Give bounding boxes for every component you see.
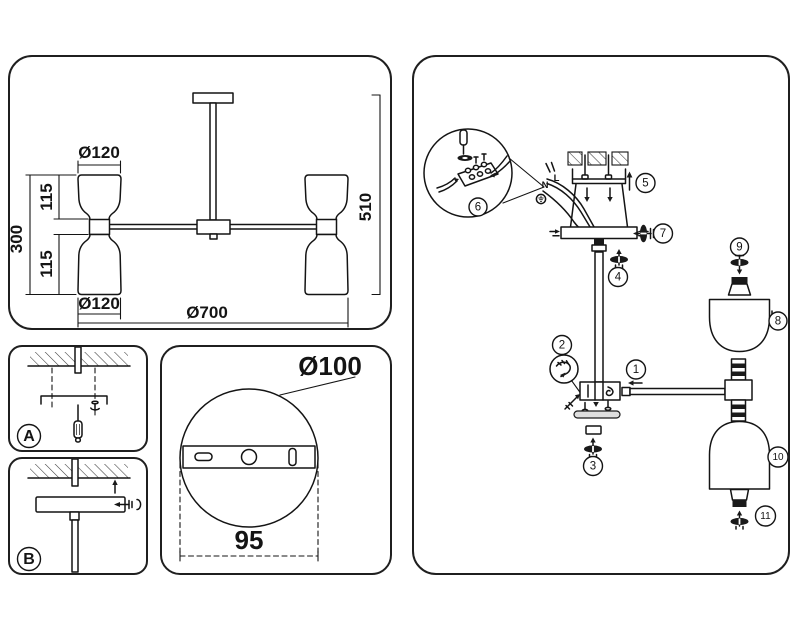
svg-text:9: 9 [736, 242, 742, 254]
ceiling-pipe [75, 347, 81, 373]
callout-5: 5 [636, 174, 655, 193]
ceiling-pipe [72, 459, 78, 486]
callout-1: 1 [627, 360, 646, 379]
dim-lower-height: 115 [37, 250, 56, 277]
down-rod [595, 252, 603, 382]
washer-icon [458, 155, 473, 161]
ceiling-hatch [568, 152, 628, 165]
svg-text:5: 5 [642, 178, 648, 190]
screw-icon [91, 401, 99, 410]
threaded-stud-upper [732, 359, 746, 380]
twist-screw-icon-3 [584, 438, 602, 458]
socket-lower [731, 490, 749, 508]
wire-label-live: L [554, 173, 560, 184]
svg-text:1: 1 [633, 364, 639, 376]
bubble-leader-top [509, 158, 544, 187]
arm-connector [622, 388, 725, 396]
callout-7: 7 [654, 224, 673, 243]
ground-icon [536, 194, 545, 203]
step-b-drawing: B [10, 459, 146, 573]
push-up-arrow [627, 172, 633, 191]
svg-text:8: 8 [775, 316, 781, 328]
terminal-detail-bubble: 6 [424, 129, 512, 217]
step-a-drawing: A [10, 347, 146, 450]
screwdriver-icon [460, 130, 467, 154]
assembly-drawing: 6 [414, 57, 788, 573]
insert-arrow [628, 380, 642, 385]
threaded-stud-lower [732, 400, 746, 421]
step-b-badge: B [18, 548, 41, 571]
svg-text:7: 7 [660, 228, 666, 240]
panel-step-a: A [8, 345, 148, 452]
ceiling-mount-plate [193, 93, 233, 220]
lamp-right [305, 175, 348, 295]
plate-bar [183, 446, 315, 468]
instruction-sheet: Ø120 115 300 115 Ø120 Ø700 510 [0, 0, 800, 622]
dim-height: 510 [356, 193, 375, 221]
arm-hub [725, 380, 752, 400]
svg-text:6: 6 [475, 202, 481, 214]
lift-arrow [112, 480, 117, 494]
panel-dimensions: Ø120 115 300 115 Ø120 Ø700 510 [8, 55, 392, 330]
center-hub [197, 220, 230, 239]
wire-label-neutral: N [542, 180, 549, 191]
screwdriver-icon [74, 405, 82, 442]
svg-text:11: 11 [760, 511, 771, 522]
socket-upper [729, 277, 751, 295]
shade-upper [710, 300, 770, 352]
central-hub [580, 382, 620, 400]
canopy-screws [584, 188, 612, 202]
twist-screw-icon-4 [610, 249, 628, 268]
bubble2-leader [572, 381, 581, 394]
panel-step-b: B [8, 457, 148, 575]
canopy [571, 184, 628, 227]
pitch-label: 95 [235, 525, 264, 555]
hook-detail-bubble [550, 355, 578, 383]
hub-nut [586, 426, 601, 434]
svg-text:3: 3 [590, 461, 596, 473]
svg-text:10: 10 [772, 452, 784, 463]
canopy-rim [561, 227, 637, 251]
svg-text:4: 4 [615, 272, 622, 284]
dim-top-diameter: Ø120 [78, 143, 120, 162]
dimension-drawing: Ø120 115 300 115 Ø120 Ø700 510 [10, 57, 390, 328]
canopy-plate [36, 497, 125, 572]
cover-disc [574, 411, 620, 418]
callout-2: 2 [553, 336, 572, 355]
callout-8: 8 [769, 312, 787, 330]
dim-bottom-diameter: Ø120 [78, 294, 120, 313]
dim-upper-height: 115 [37, 183, 56, 210]
svg-text:B: B [23, 551, 35, 568]
callout-11: 11 [756, 506, 776, 526]
callout-4: 4 [609, 268, 628, 287]
plate-drawing: Ø100 95 [162, 347, 390, 573]
ceiling-hatch [28, 464, 130, 478]
panel-plate-detail: Ø100 95 [160, 345, 392, 575]
step-a-badge: A [18, 425, 41, 448]
panel-assembly: 6 [412, 55, 790, 575]
callout-10: 10 [768, 447, 788, 467]
shade-lower [710, 422, 770, 490]
callout-6: 6 [469, 198, 487, 216]
callout-9: 9 [731, 238, 749, 256]
svg-text:A: A [23, 428, 35, 445]
twist-screw-icon-9 [731, 256, 749, 275]
plate-diameter-label: Ø100 [298, 351, 362, 381]
callout-3: 3 [584, 457, 603, 476]
dim-span: Ø700 [186, 303, 228, 322]
twist-screw-icon-11 [731, 511, 749, 530]
svg-text:2: 2 [559, 340, 565, 352]
dim-lamp-height: 300 [10, 225, 26, 253]
